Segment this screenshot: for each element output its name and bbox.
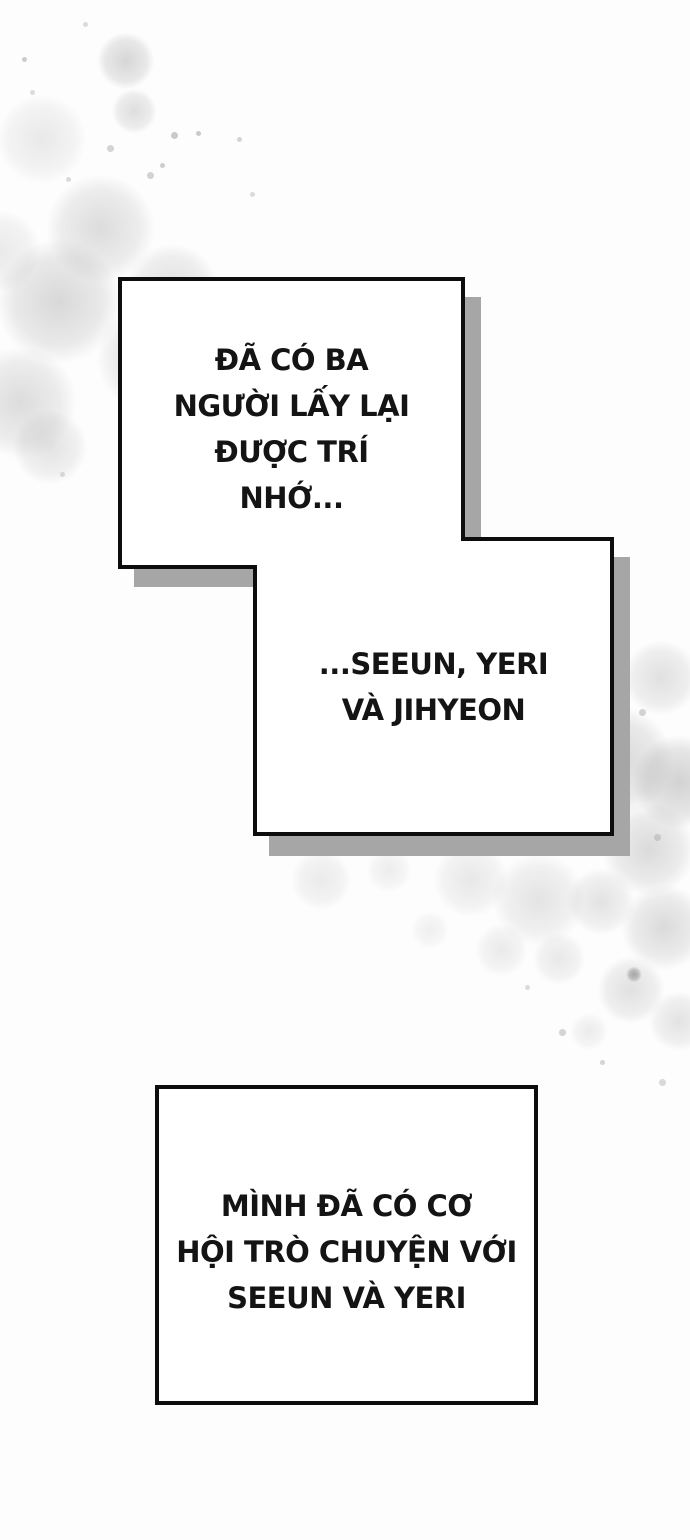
panel-group <box>0 0 690 900</box>
narration-box-3 <box>155 1085 538 1405</box>
comic-page: ĐÃ CÓ BA NGƯỜI LẤY LẠI ĐƯỢC TRÍ NHỚ... .… <box>0 0 690 1540</box>
narration-panel-union-outline <box>120 279 612 834</box>
